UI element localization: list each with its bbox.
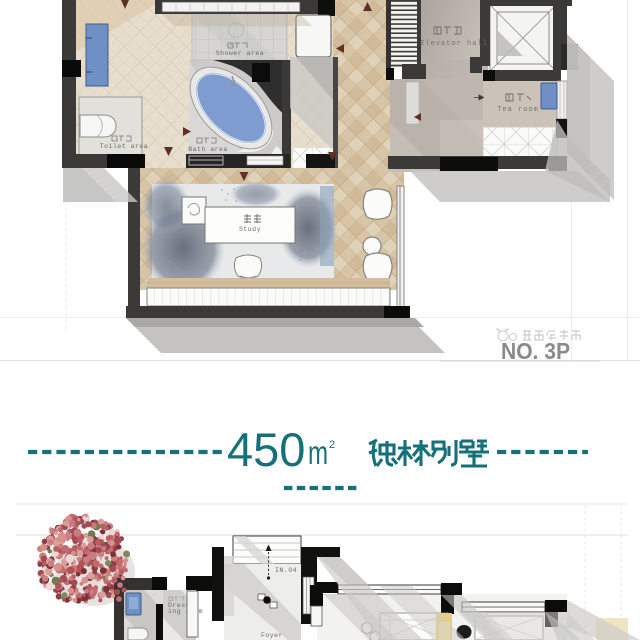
svg-text:Elevator hall: Elevator hall: [420, 40, 488, 48]
svg-text:m: m: [308, 435, 328, 472]
svg-text:Foyer: Foyer: [261, 632, 283, 639]
svg-text:2: 2: [329, 439, 335, 451]
svg-text:IN.04: IN.04: [275, 567, 297, 574]
svg-text:450: 450: [227, 423, 305, 476]
svg-text:Toilet area: Toilet area: [100, 143, 148, 150]
svg-text:NO. 3P: NO. 3P: [501, 338, 570, 364]
svg-text:Shower area: Shower area: [216, 50, 264, 57]
svg-text:Bath area: Bath area: [188, 146, 228, 153]
svg-text:Study: Study: [239, 226, 261, 233]
svg-text:Tea room: Tea room: [497, 106, 539, 114]
